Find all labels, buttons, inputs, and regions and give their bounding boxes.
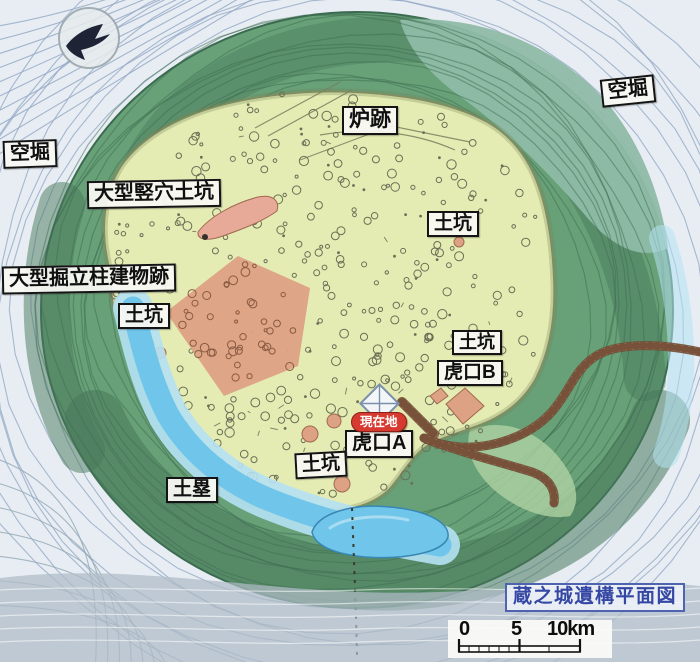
map-label-dorui: 土塁 bbox=[166, 477, 218, 503]
scale-ruler bbox=[454, 639, 594, 655]
map-label-ohgata-hottatebashira: 大型掘立柱建物跡 bbox=[2, 263, 176, 294]
map-label-koguchi-b: 虎口B bbox=[437, 360, 503, 386]
scale-tick-0: 0 bbox=[459, 618, 469, 641]
scale-bar: 0 5 10km bbox=[448, 620, 612, 658]
map-label-karabori-left: 空堀 bbox=[3, 139, 58, 168]
map-label-dokou-e: 土坑 bbox=[452, 330, 502, 355]
map-label-rozeki: 炉跡 bbox=[342, 106, 398, 135]
map-label-koguchi-a: 虎口A bbox=[345, 430, 413, 458]
map-label-dokou-ne: 土坑 bbox=[427, 211, 479, 237]
map-label-ohgata-tateana-dokou: 大型竪穴土坑 bbox=[87, 179, 221, 209]
map-title: 蔵之城遺構平面図 bbox=[505, 583, 685, 612]
map-label-karabori-right: 空堀 bbox=[600, 74, 657, 107]
terrain-map bbox=[0, 0, 700, 662]
pit-dot bbox=[202, 234, 208, 240]
north-arrow-icon bbox=[53, 2, 125, 72]
scale-tick-5: 5 bbox=[511, 618, 521, 641]
map-label-dokou-w: 土坑 bbox=[118, 303, 170, 329]
scale-tick-10: 10km bbox=[547, 618, 594, 641]
archaeological-site-map: 空堀大型竪穴土坑炉跡土坑空堀大型掘立柱建物跡土坑土坑虎口B虎口A土坑土塁 現在地… bbox=[0, 0, 700, 662]
map-label-dokou-s: 土坑 bbox=[294, 451, 347, 480]
current-location-badge: 現在地 bbox=[351, 412, 407, 432]
